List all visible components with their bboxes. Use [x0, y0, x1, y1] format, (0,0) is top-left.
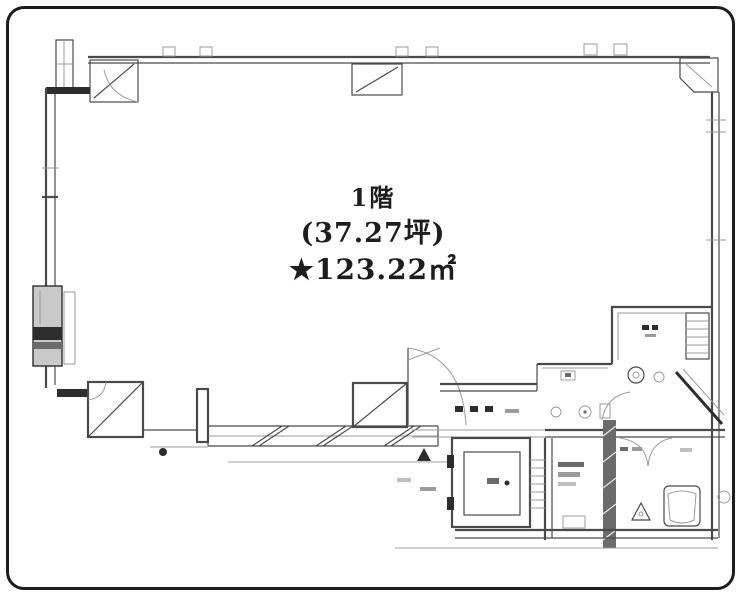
marker-dot-icon — [159, 448, 167, 456]
diagonal-wall — [676, 369, 724, 424]
wash-area-fixtures — [561, 367, 664, 420]
room-label-marks — [397, 404, 610, 491]
column-bottom-middle — [353, 383, 407, 427]
core-bottom-wall — [395, 530, 718, 548]
roof-vent-icon — [163, 44, 627, 56]
corner-column-bottom-left — [88, 382, 197, 437]
top-wall — [88, 44, 710, 63]
elevator — [447, 438, 530, 527]
staircase — [530, 452, 545, 518]
window-band — [150, 426, 448, 462]
area-tsubo-label: (37.27坪) — [250, 220, 496, 247]
area-label-block: 1階 (37.27坪) ★123.22㎡ — [250, 186, 496, 284]
entry-door-swing — [408, 348, 466, 425]
floor-label: 1階 — [250, 186, 496, 210]
left-wall-end-stub — [57, 389, 88, 397]
corner-column-top-left — [46, 60, 138, 102]
pipe-shaft — [33, 286, 75, 366]
area-sqm-label: ★123.22㎡ — [250, 256, 496, 284]
toilet-room — [620, 438, 700, 526]
top-left-protrusion — [56, 40, 73, 90]
floor-plan-drawing — [0, 0, 744, 598]
washroom — [545, 438, 585, 540]
column-top-middle — [352, 64, 402, 95]
pillar-bottom-left — [197, 389, 208, 442]
floor-plan-page: 1階 (37.27坪) ★123.22㎡ — [0, 0, 744, 598]
hatched-wall — [603, 420, 616, 548]
kitchenette-room — [612, 307, 712, 364]
marker-triangle-icon — [417, 448, 431, 461]
